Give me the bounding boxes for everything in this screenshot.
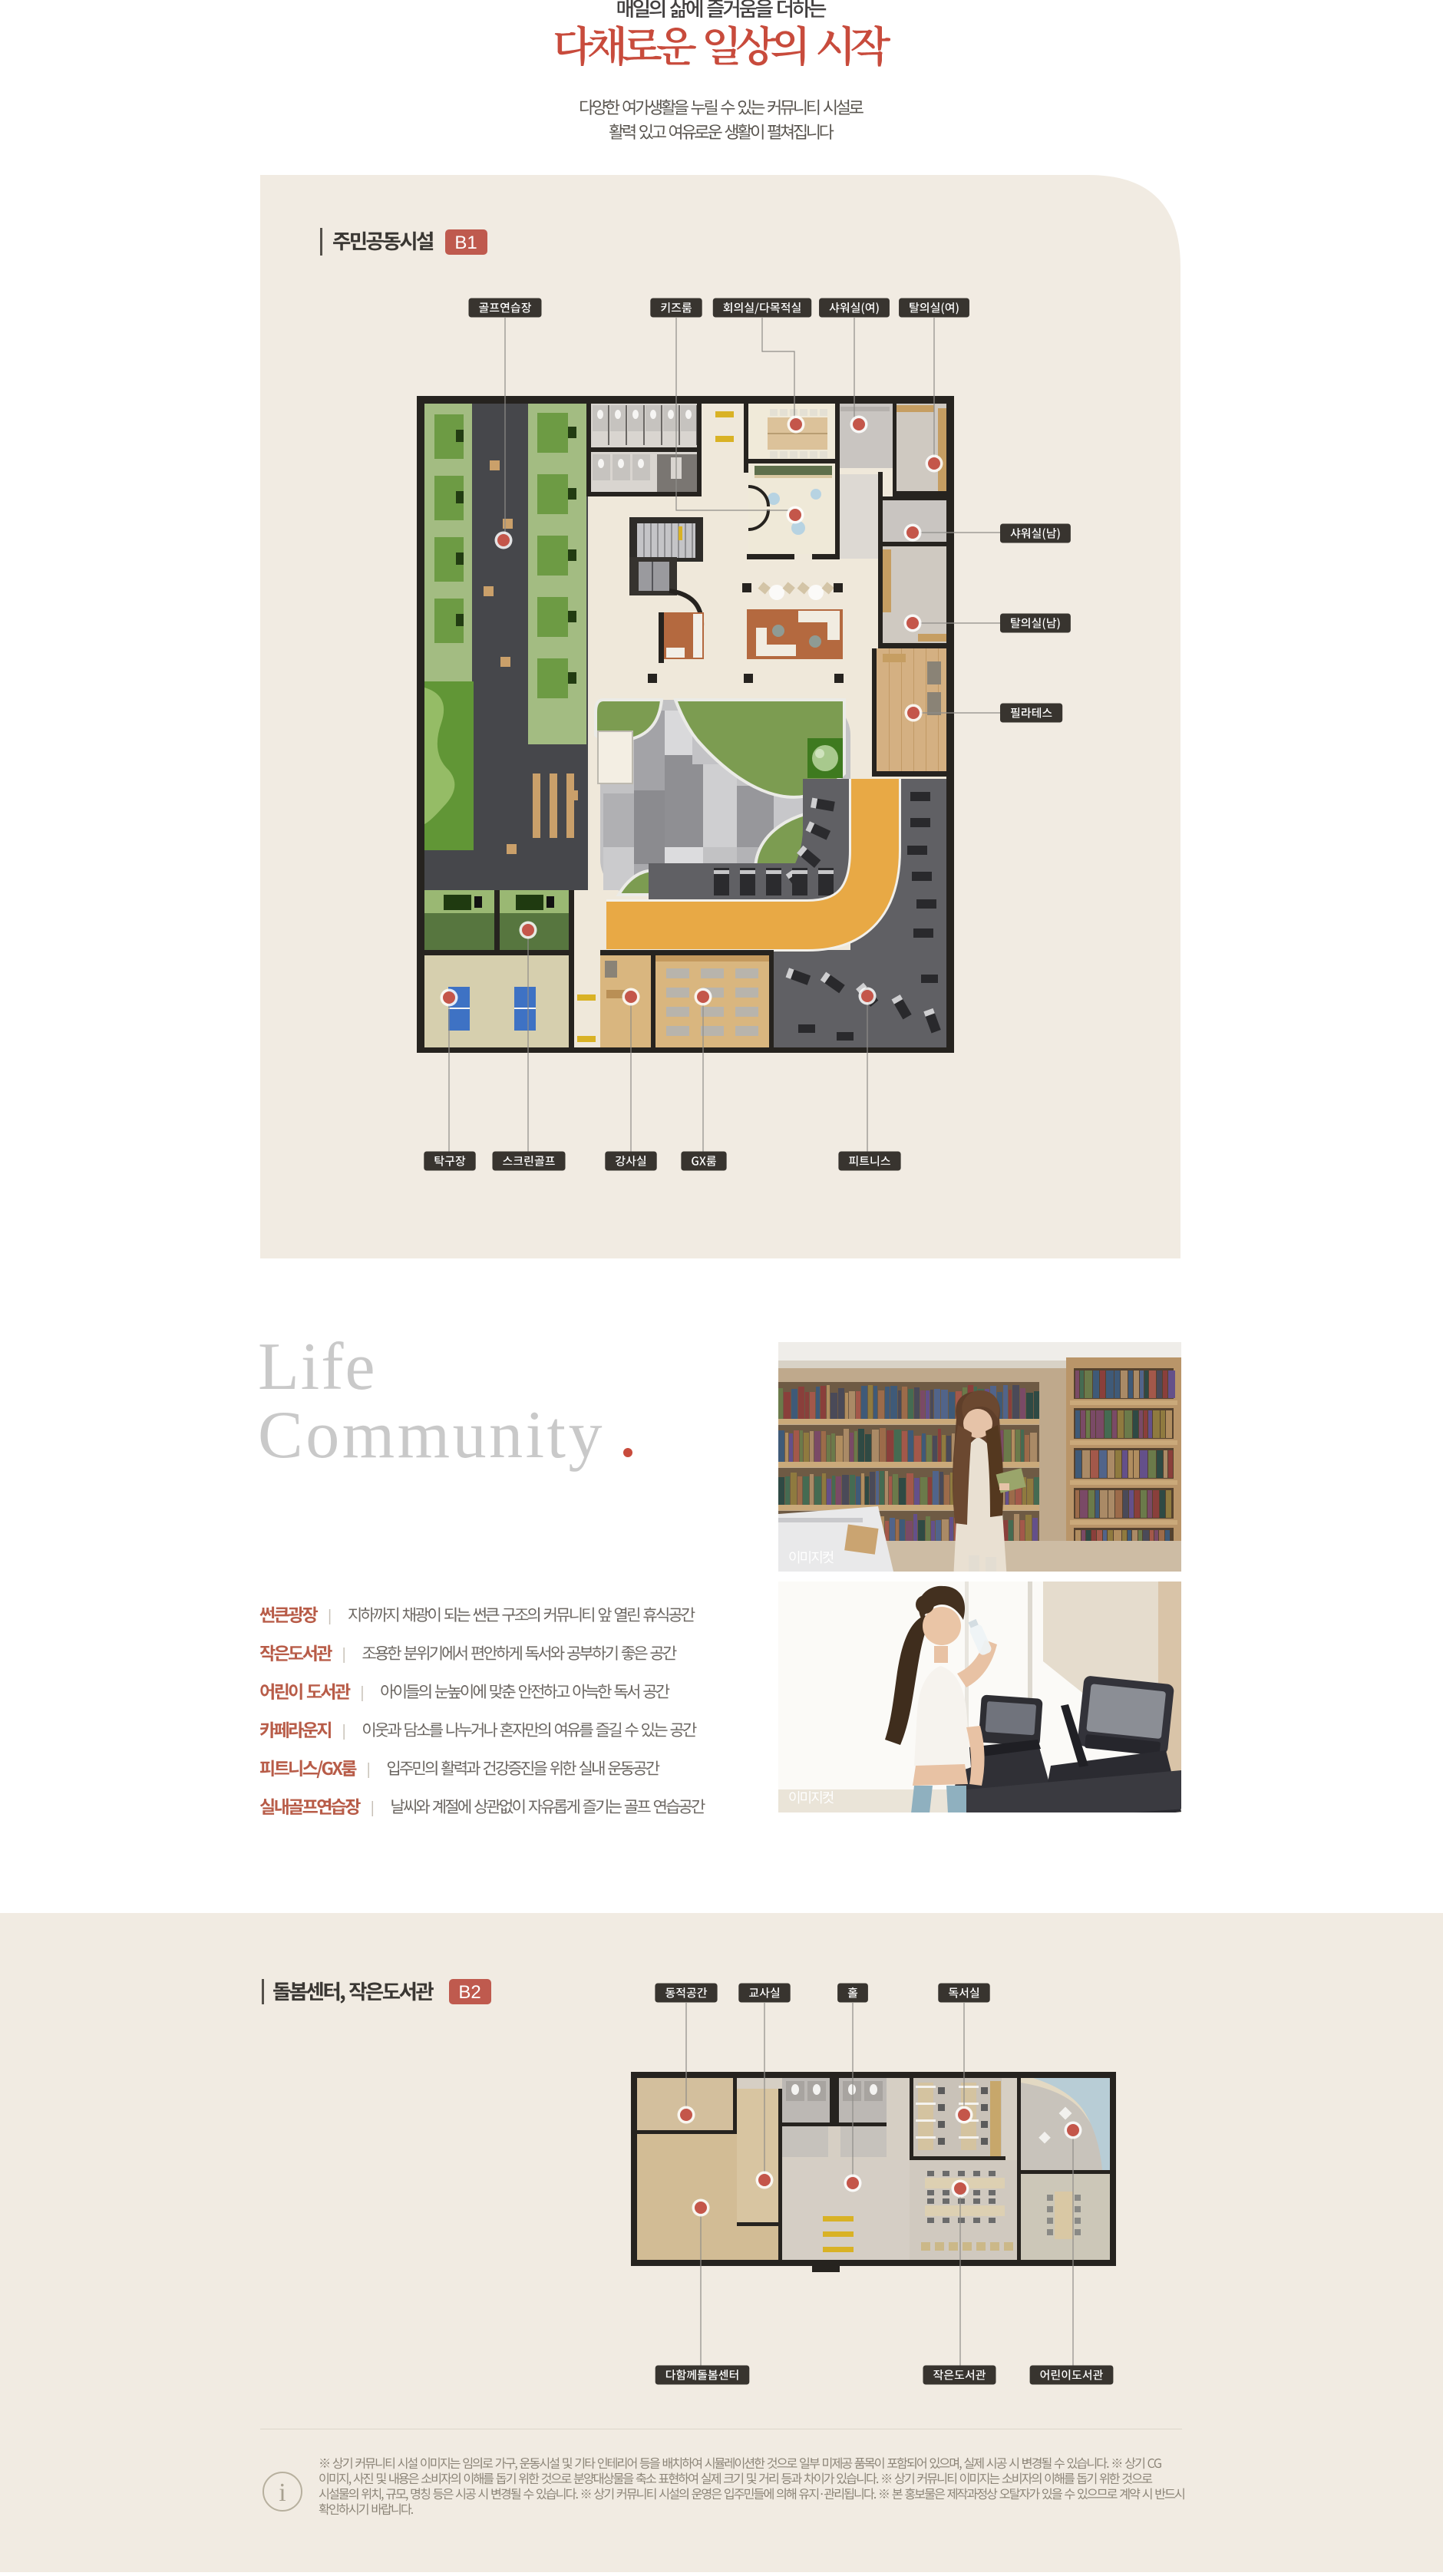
svg-text:Life: Life [258,1330,377,1404]
svg-text:B2: B2 [458,1982,480,2003]
svg-text:Community: Community [258,1398,605,1473]
svg-text:B1: B1 [454,233,477,253]
svg-text:i: i [279,2479,286,2507]
